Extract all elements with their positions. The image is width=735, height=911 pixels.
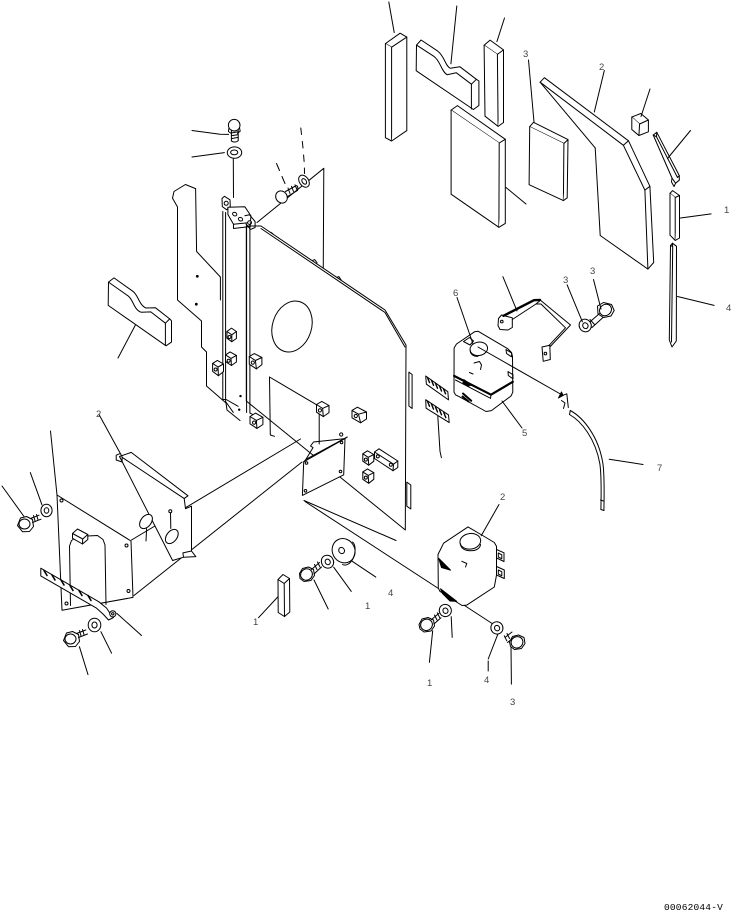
svg-text:2: 2	[599, 62, 604, 73]
svg-text:1: 1	[724, 205, 729, 216]
svg-text:3: 3	[590, 266, 595, 277]
svg-text:2: 2	[96, 409, 101, 420]
svg-text:2: 2	[500, 492, 505, 503]
svg-text:3: 3	[510, 697, 515, 708]
svg-text:4: 4	[484, 675, 489, 686]
svg-text:1: 1	[427, 678, 432, 689]
svg-text:00062044-V: 00062044-V	[664, 902, 723, 911]
svg-text:6: 6	[453, 288, 458, 299]
svg-text:4: 4	[726, 303, 731, 314]
svg-text:5: 5	[522, 428, 527, 439]
svg-text:1: 1	[365, 601, 370, 612]
svg-text:4: 4	[388, 588, 393, 599]
svg-text:7: 7	[657, 463, 662, 474]
svg-text:3: 3	[523, 49, 528, 60]
svg-text:1: 1	[253, 617, 258, 628]
svg-text:3: 3	[563, 275, 568, 286]
